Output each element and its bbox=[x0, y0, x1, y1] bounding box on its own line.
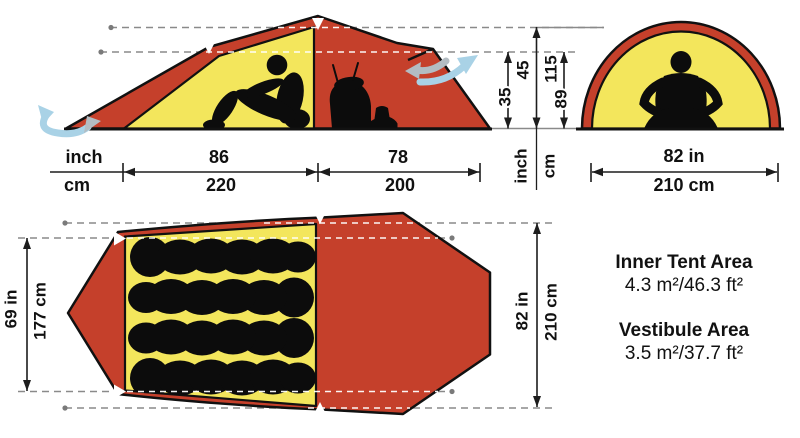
floor-outer-width-cm-label: 210 cm bbox=[542, 283, 561, 341]
floor-inner-width-cm-label: 177 cm bbox=[31, 282, 50, 340]
height-unit-cm-label: cm bbox=[540, 154, 559, 179]
ridge-height-inch-label: 45 bbox=[514, 61, 533, 80]
inner-width-cm-value: 220 bbox=[206, 175, 236, 195]
tent-spec-sheet: 35 45 115 89 inch cm inch cm 86 220 78 2… bbox=[0, 0, 800, 438]
inner-tent-area-title: Inner Tent Area bbox=[615, 252, 753, 273]
ridge-height-cm-label: 115 bbox=[542, 55, 561, 82]
tent-spec-diagram: 35 45 115 89 inch cm inch cm 86 220 78 2… bbox=[0, 0, 800, 438]
floor-plan: 69 in 177 cm 82 in 210 cm bbox=[2, 212, 561, 414]
inner-tent-area-value: 4.3 m²/46.3 ft² bbox=[625, 275, 743, 296]
vent-height-inch-label: 35 bbox=[496, 88, 515, 107]
length-dimensions: inch cm 86 220 78 200 bbox=[50, 147, 480, 195]
vestibule-area-value: 3.5 m²/37.7 ft² bbox=[625, 343, 743, 364]
unit-inch-label: inch bbox=[65, 147, 102, 167]
vestibule-depth-cm-value: 200 bbox=[385, 175, 415, 195]
vestibule-area-title: Vestibule Area bbox=[619, 320, 750, 341]
area-info: Inner Tent Area 4.3 m²/46.3 ft² Vestibul… bbox=[615, 252, 753, 364]
side-view bbox=[38, 16, 492, 134]
vestibule-depth-inch-value: 78 bbox=[388, 147, 408, 167]
floor-inner-width-inch-label: 69 in bbox=[2, 290, 21, 329]
floor-outer-width-inch-label: 82 in bbox=[513, 292, 532, 331]
front-width-cm-value: 210 cm bbox=[653, 175, 714, 195]
height-unit-inch-label: inch bbox=[512, 149, 531, 184]
front-view: 82 in 210 cm bbox=[576, 22, 784, 195]
unit-cm-label: cm bbox=[64, 175, 90, 195]
inner-width-inch-value: 86 bbox=[209, 147, 229, 167]
vent-height-cm-label: 89 bbox=[552, 90, 571, 109]
front-width-inch-value: 82 in bbox=[663, 146, 704, 166]
